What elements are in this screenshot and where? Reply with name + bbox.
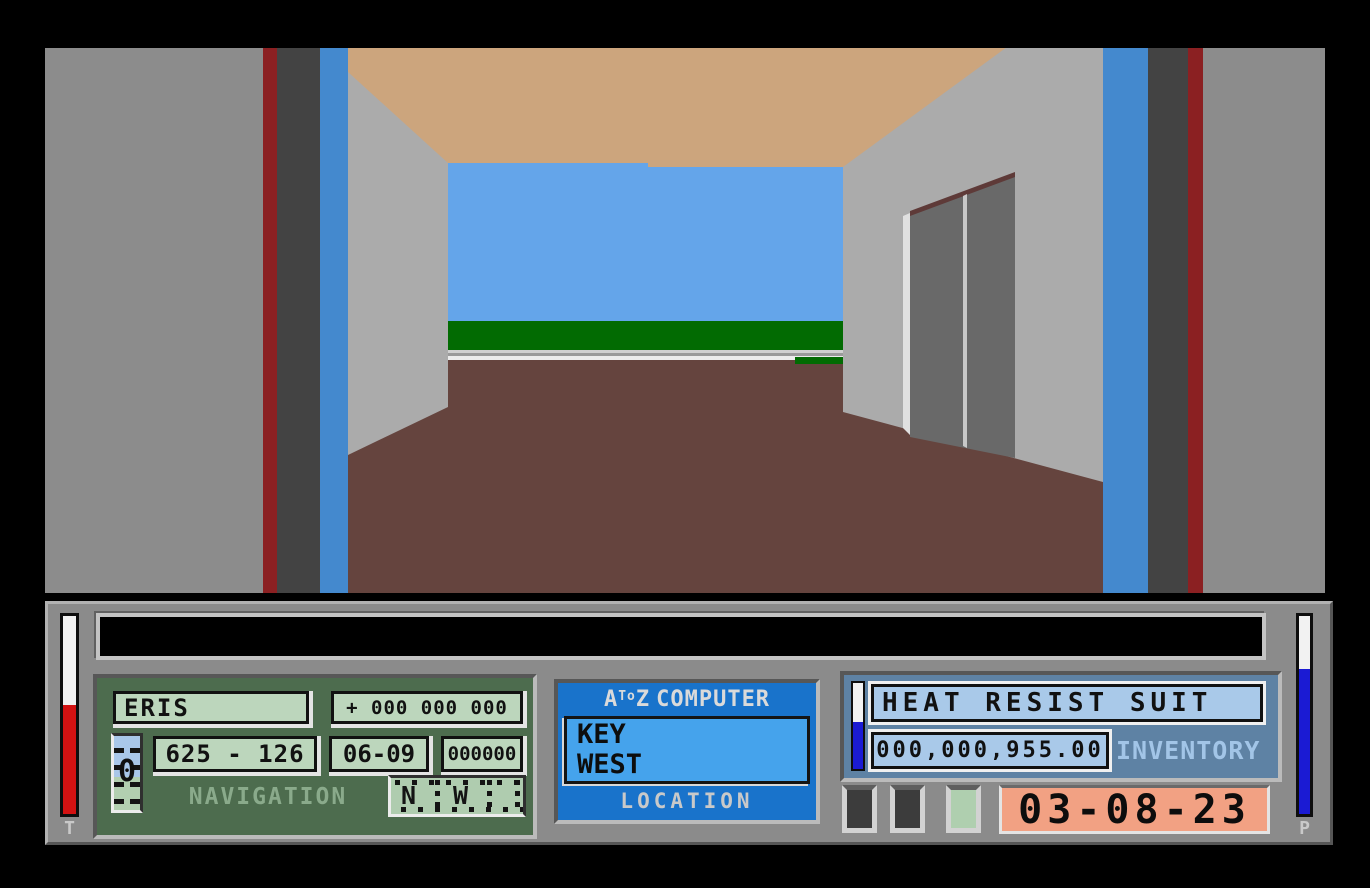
message-display xyxy=(96,613,1266,660)
viewport-top-frame xyxy=(45,45,1325,48)
compass-tick-column xyxy=(515,780,520,812)
location-line-2: WEST xyxy=(577,750,807,780)
location-line-1: KEY xyxy=(577,720,807,750)
computer-panel: AToZCOMPUTER KEY WEST LOCATION xyxy=(554,679,820,824)
edge-stripe-dark-left xyxy=(277,45,320,593)
inventory-gauge xyxy=(851,681,865,771)
edge-stripe-red-right xyxy=(1188,45,1203,593)
navigation-panel: ERIS + 000 000 000 0 625 - 126 06-09 000… xyxy=(93,674,537,839)
indicator-button-2[interactable] xyxy=(890,785,925,833)
coordinates-display: 625 - 126 xyxy=(153,736,317,772)
indicator-button-1[interactable] xyxy=(842,785,877,833)
sector-display: 06-09 xyxy=(329,736,429,772)
edge-stripe-blue-left xyxy=(320,45,348,593)
edge-stripe-dark-right xyxy=(1148,45,1188,593)
game-viewport[interactable] xyxy=(45,45,1325,593)
near-wall-left xyxy=(45,45,263,593)
power-gauge-label: P xyxy=(1293,819,1316,839)
navigation-label: NAVIGATION xyxy=(158,784,378,810)
near-wall-right xyxy=(1203,45,1325,593)
compass-tick-column xyxy=(487,780,492,812)
door-frame xyxy=(903,213,910,435)
inventory-gauge-fill xyxy=(853,722,863,769)
hud-panel: T P ERIS + 000 000 000 0 625 - 126 06-09… xyxy=(45,601,1333,845)
planet-display: ERIS xyxy=(113,691,309,724)
compass-north: N xyxy=(401,781,416,810)
date-display: 03-08-23 xyxy=(999,785,1270,834)
brand-a: A xyxy=(604,687,618,712)
door xyxy=(910,176,1015,458)
brand-to: To xyxy=(618,689,636,704)
item-display: HEAT RESIST SUIT xyxy=(871,684,1263,722)
temperature-gauge-label: T xyxy=(58,819,81,839)
door-divider xyxy=(963,194,967,448)
counter-display: 000000 xyxy=(441,736,523,772)
cash-display: 000,000,955.00 xyxy=(871,732,1109,769)
compass-west: W xyxy=(453,781,468,810)
inventory-label: INVENTORY xyxy=(1116,736,1260,765)
computer-title: COMPUTER xyxy=(656,687,770,712)
compass-tick-column xyxy=(435,780,440,812)
compass-display: N W xyxy=(388,775,526,817)
power-gauge-fill xyxy=(1299,669,1310,814)
offset-display: + 000 000 000 xyxy=(331,691,523,724)
computer-header: AToZCOMPUTER xyxy=(558,687,816,712)
edge-stripe-blue-right xyxy=(1103,45,1148,593)
brand-z: Z xyxy=(636,687,650,712)
indicator-button-3[interactable] xyxy=(946,785,981,833)
inventory-panel: HEAT RESIST SUIT 000,000,955.00 INVENTOR… xyxy=(840,671,1282,782)
location-display: KEY WEST xyxy=(564,716,810,784)
temperature-gauge xyxy=(60,613,79,817)
edge-stripe-red-left xyxy=(263,45,277,593)
altitude-value: 0 xyxy=(118,754,136,789)
location-label: LOCATION xyxy=(558,789,816,813)
altimeter-gauge: 0 xyxy=(111,733,143,813)
temperature-gauge-fill xyxy=(63,705,76,814)
power-gauge xyxy=(1296,613,1313,817)
grass-patch xyxy=(795,357,843,364)
